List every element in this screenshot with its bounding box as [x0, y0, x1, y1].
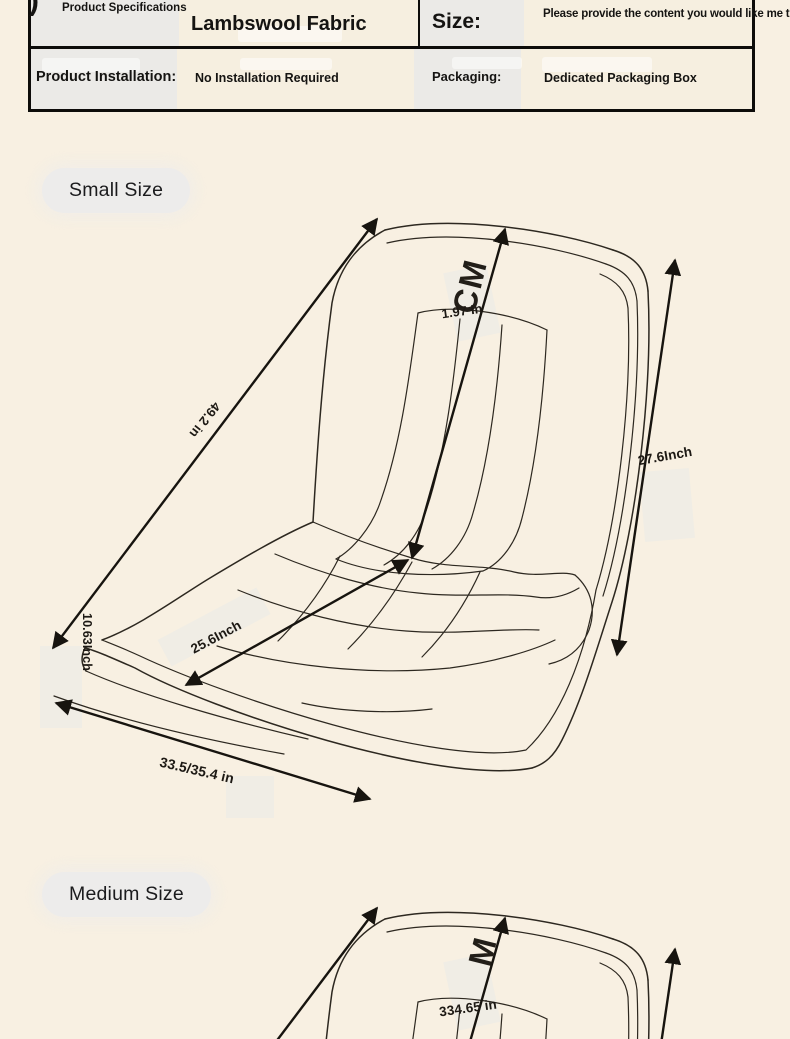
table-caption: Product Specifications [62, 2, 187, 15]
page: { "colors": { "page_bg": "#f8f0e2", "tab… [0, 0, 790, 1039]
erased-text-patch [240, 58, 332, 70]
cut-off-glyph: ) [29, 0, 39, 19]
dim-label-thickness: 10.63Inch [80, 613, 94, 671]
seat-line-drawing-medium: M 334.65 in [40, 887, 760, 1039]
spec-table: ) Product Specifications Lambswool Fabri… [28, 0, 758, 112]
seat-line-drawing-small: CM 1.97 In 49.2 in 27.6Inch 10.63Inch 25… [40, 198, 760, 846]
erased-text-patch [542, 57, 652, 72]
seat-drawing-svg [40, 887, 760, 1039]
seat-drawing-svg [40, 198, 760, 846]
size-label: Size: [432, 10, 481, 34]
table-border-bottom [28, 109, 755, 112]
material-value: Lambswool Fabric [191, 13, 367, 36]
packaging-label: Packaging: [432, 70, 501, 85]
packaging-value: Dedicated Packaging Box [544, 71, 697, 85]
installation-label: Product Installation: [36, 69, 176, 86]
table-column-divider [418, 0, 420, 46]
size-value: Please provide the content you would lik… [543, 8, 789, 21]
erased-text-patch [452, 57, 522, 69]
table-row-divider [28, 46, 755, 49]
installation-value: No Installation Required [195, 71, 339, 85]
